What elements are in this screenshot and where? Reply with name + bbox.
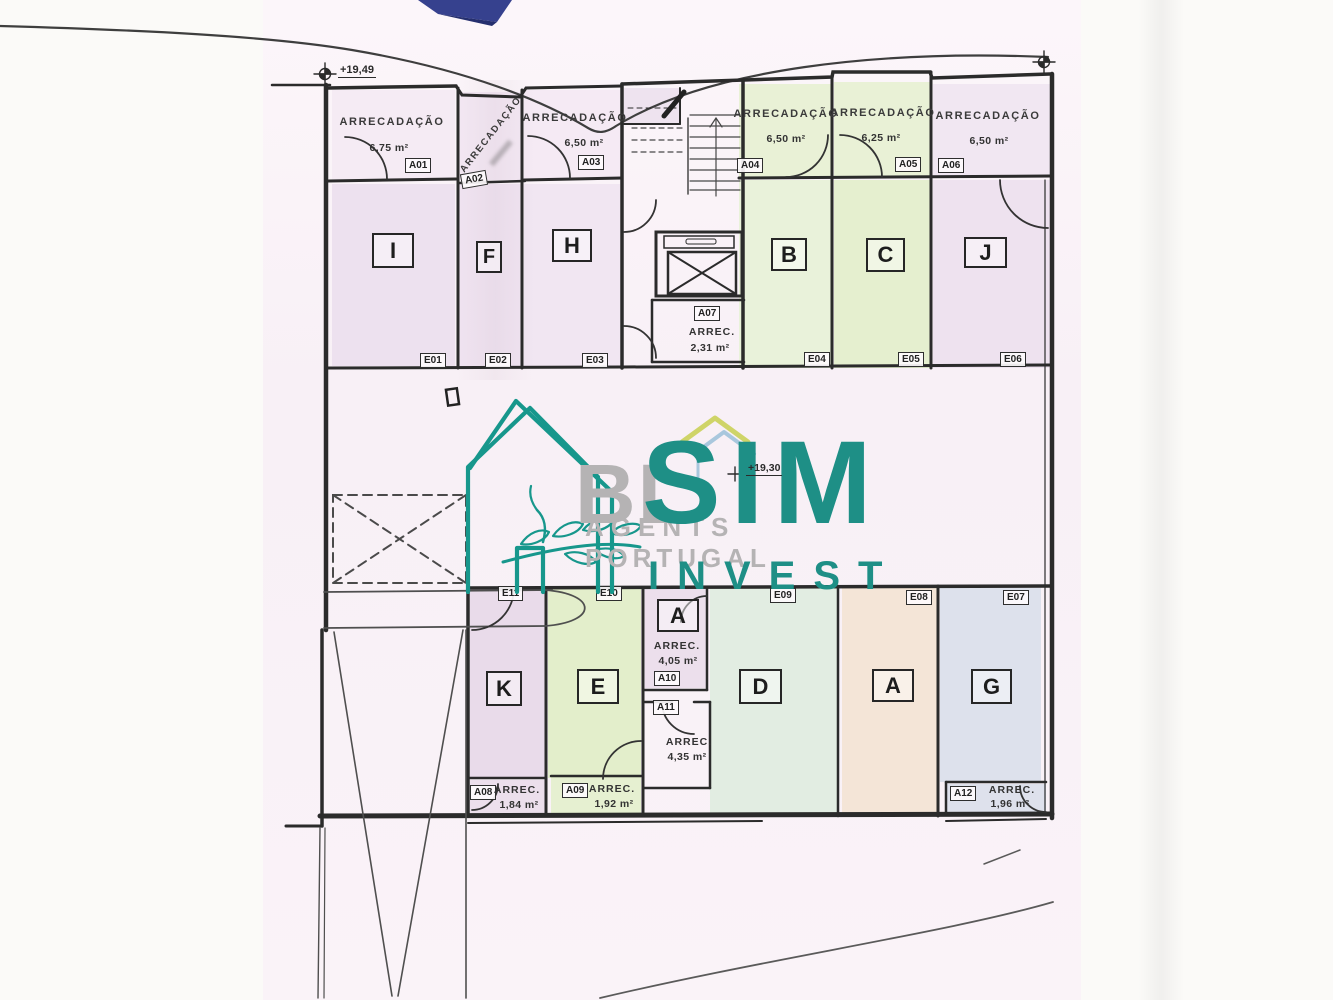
storage-a06-tag: A06 — [938, 158, 964, 173]
storage-a03-tag: A03 — [578, 155, 604, 170]
storage-a01-area: 6,75 m² — [370, 142, 409, 154]
storage-a07-area: 2,31 m² — [691, 342, 730, 354]
corner-overlay — [418, 0, 512, 26]
storage-a06-label: ARRECADAÇÃO — [936, 110, 1041, 122]
storage-a08-area: 1,84 m² — [500, 799, 539, 811]
storage-a10-label: ARREC. — [654, 640, 700, 652]
storage-a04-tag: A04 — [737, 158, 763, 173]
elevation-middle-label: +19,30 — [746, 462, 782, 476]
unit-b-letter: B — [771, 238, 807, 271]
storage-a12-label: ARREC. — [989, 784, 1035, 796]
unit-j-letter: J — [964, 237, 1007, 268]
unit-a-tag: E08 — [906, 590, 932, 605]
unit-i-letter: I — [372, 233, 414, 268]
storage-a04-area: 6,50 m² — [767, 133, 806, 145]
unit-h-tag: E03 — [582, 353, 608, 368]
unit-j-tag: E06 — [1000, 352, 1026, 367]
storage-a09-area: 1,92 m² — [595, 798, 634, 810]
unit-c-tag: E05 — [898, 352, 924, 367]
storage-a11-tag: A11 — [653, 700, 679, 715]
storage-a08-label: ARREC. — [494, 784, 540, 796]
storage-a08-tag: A08 — [470, 785, 496, 800]
unit-b-tag: E04 — [804, 352, 830, 367]
unit-g-tag: E07 — [1003, 590, 1029, 605]
storage-a12-area: 1,96 m² — [991, 798, 1030, 810]
storage-a12-tag: A12 — [950, 786, 976, 801]
storage-a01-label: ARRECADAÇÃO — [340, 116, 445, 128]
storage-a07-tag: A07 — [694, 306, 720, 321]
unit-a-letter: A — [872, 669, 914, 702]
unit-f-letter: F — [476, 241, 502, 273]
storage-a11-label: ARREC. — [666, 736, 712, 748]
unit-f-tag: E02 — [485, 353, 511, 368]
watermark-sim: SIM — [642, 424, 882, 542]
elevator-icon — [656, 232, 742, 296]
storage-a01-tag: A01 — [405, 158, 431, 173]
unit-g-letter: G — [971, 669, 1012, 704]
storage-a03-label: ARRECADAÇÃO — [523, 112, 628, 124]
storage-a05-label: ARRECADAÇÃO — [831, 107, 936, 119]
watermark-invest: INVEST — [648, 556, 900, 596]
unit-d-letter: D — [739, 669, 782, 704]
storage-a10-area: 4,05 m² — [659, 655, 698, 667]
storage-a10-tag: A10 — [654, 671, 680, 686]
storage-a11-area: 4,35 m² — [668, 751, 707, 763]
storage-a09-label: ARREC. — [589, 783, 635, 795]
storage-a05-tag: A05 — [895, 157, 921, 172]
storage-a07-label: ARREC. — [689, 326, 735, 338]
unit-h-letter: H — [552, 229, 592, 262]
unit-i-tag: E01 — [420, 353, 446, 368]
scanned-floor-plan: +19,49 +19,30 ARRECADAÇÃO 6,75 m² A01 AR… — [0, 0, 1333, 1000]
elevation-top-label: +19,49 — [338, 64, 376, 78]
storage-a05-area: 6,25 m² — [862, 132, 901, 144]
unit-c-letter: C — [866, 238, 905, 272]
unit-e-letter: E — [577, 669, 619, 704]
storage-a03-area: 6,50 m² — [565, 137, 604, 149]
storage-a06-area: 6,50 m² — [970, 135, 1009, 147]
storage-a04-label: ARRECADAÇÃO — [734, 108, 839, 120]
unit-k-letter: K — [486, 671, 522, 706]
storage-a09-tag: A09 — [562, 783, 588, 798]
